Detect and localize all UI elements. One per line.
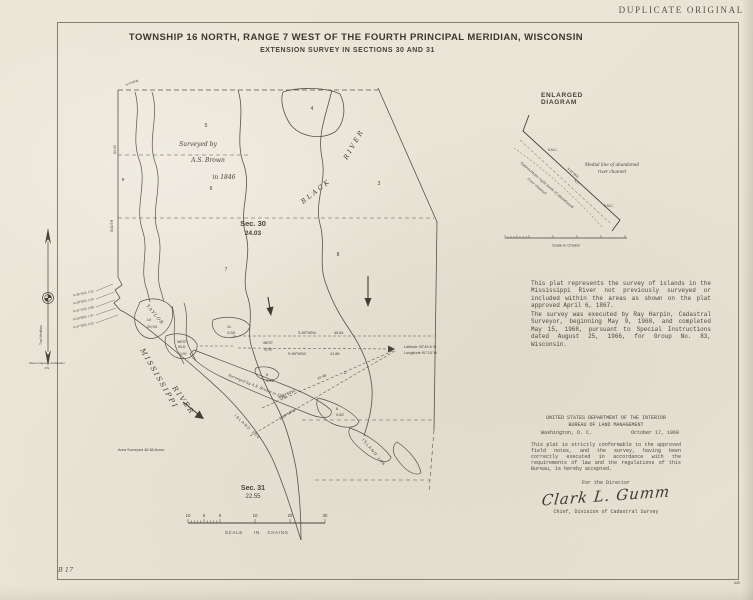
southeast-boundary-dashed — [429, 430, 434, 492]
long-center-island-outline — [190, 350, 331, 417]
taylor-island-name: TAYLOR — [144, 303, 165, 326]
meander-leader-3 — [96, 300, 115, 307]
island-5-area: 0.48 — [266, 378, 275, 383]
lot-number-9: 9 — [122, 177, 125, 182]
west-boundary-distance: 64.43 — [113, 145, 117, 154]
west-tie-distance: 26.60 — [264, 348, 273, 352]
tie-distance-3: 47.46 — [317, 373, 327, 381]
right-bank-dashed-2 — [514, 148, 602, 227]
section-30-area: 24.03 — [245, 230, 262, 237]
diagram-distance: 4.27 — [573, 179, 580, 186]
island-8-lot: 8 — [336, 406, 339, 411]
lot-number-5: 5 — [205, 123, 208, 129]
compass-quarter-sw — [45, 298, 48, 301]
diagram-scale-label: Scale in Chains — [552, 243, 580, 248]
surveyed-by-line1: Surveyed by — [179, 141, 217, 148]
scale-bar-ticks — [188, 519, 325, 523]
lot-number-1: 1 — [344, 370, 347, 375]
west-boundary-south-label: SOUTH — [110, 219, 114, 232]
smc-label-lower: S.M.C. — [604, 204, 614, 208]
main-scale-bar: 10 5 0 10 20 30 SCALE IN CHAINS — [186, 513, 328, 535]
tie-bearing-2: S.89°56'W. — [288, 352, 307, 356]
tie-line-3 — [262, 350, 395, 408]
section-30-label: Sec. 30 — [240, 219, 266, 228]
surveyed-by-line3: in 1846 — [213, 174, 236, 181]
meander-leader-2 — [96, 292, 114, 299]
scale-word-scale: SCALE — [225, 530, 243, 535]
declination-label-line1: Mean magnetic declination — [29, 361, 65, 365]
west-island-name-line1: WEST — [177, 340, 188, 344]
flow-arrows — [183, 276, 372, 419]
tie-distance-1: 45.84 — [334, 331, 344, 335]
west-island-name-line2: ISLD. — [178, 345, 187, 349]
flow-arrow-channel-head — [267, 307, 274, 317]
taylor-island-area: 20.94 — [147, 324, 158, 329]
sheet-number-mark: 440 — [734, 581, 740, 585]
island-105-label: ISLAND 105 — [233, 413, 261, 440]
plat-linework — [114, 88, 437, 540]
tie-bearing-4: S.89°59'W. — [279, 408, 297, 421]
map-labels: Surveyed by A.S. Brown in 1846 Sec. 30 2… — [73, 78, 438, 500]
tie-bearing-1: S.89°58'W. — [298, 331, 317, 335]
scale-tick-label-30: 30 — [323, 513, 328, 518]
latitude-label: Latitude 43°49.6' N — [404, 345, 436, 349]
interior-slough-east-line — [152, 92, 164, 302]
section-31-label: Sec. 31 — [241, 485, 265, 492]
black-river-left-bank — [238, 90, 301, 540]
meander-leader-1 — [96, 284, 113, 291]
diagram-scale-ticks — [505, 235, 625, 238]
smc-label-upper: S.M.C. — [548, 148, 558, 152]
island-lot4-outline — [282, 88, 344, 136]
scale-word-chains: CHAINS — [267, 530, 288, 535]
west-meander-zigzag — [114, 277, 122, 310]
interior-slough-west-line — [135, 92, 150, 302]
black-river-label-word2: RIVER — [341, 127, 366, 162]
tie-line-fan — [200, 336, 434, 436]
north-arrow: True Meridian Mean magnetic declination … — [29, 228, 65, 370]
lot-number-8: 8 — [337, 252, 340, 258]
lot-number-7: 7 — [225, 267, 228, 273]
area-surveyed-note: Area Surveyed 46.58 Acres — [118, 448, 164, 452]
declination-label-line2: 4°E — [45, 366, 50, 370]
meander-bearing-5: N.47°30'E. 2.52 — [73, 321, 95, 329]
island-11-lot: 11 — [227, 324, 232, 329]
tie-line-2 — [238, 348, 395, 349]
meander-leader-4 — [96, 308, 116, 315]
meander-bearing-1: N.36°45'E. 2.31 — [73, 289, 95, 297]
west-island-area: 0.90 — [180, 352, 187, 356]
north-arrowhead-icon — [45, 228, 51, 244]
medial-line-label-1: Medial line of abandoned — [584, 162, 639, 167]
island-11-area: 3.58 — [227, 330, 236, 335]
black-river-label-word1: BLACK — [299, 177, 333, 206]
island-5-lot: 5 — [266, 372, 269, 377]
northwest-corner-bearing: N.0°03'W. — [125, 78, 140, 87]
island-106-label: ISLAND 106 — [361, 437, 387, 466]
flow-arrow-channel-shaft — [268, 297, 270, 309]
meander-leader-5 — [96, 315, 118, 323]
longitude-label: Longitude 91°15' W — [404, 351, 437, 355]
scale-word-in: IN — [254, 530, 260, 535]
flow-arrow-black-river-head — [365, 298, 372, 307]
right-bank-label-1: Approximate right bank of abandoned — [519, 160, 575, 210]
lot-number-4: 4 — [311, 106, 314, 112]
scale-tick-label-20: 20 — [288, 513, 293, 518]
scale-tick-label-10l: 10 — [186, 513, 191, 518]
taylor-island-lot: 10 — [147, 317, 152, 322]
scale-tick-label-5: 5 — [203, 513, 206, 518]
northeast-boundary-line — [378, 88, 437, 430]
enlarged-diagram: S.M.C. S.M.C. S.42°45'E. 4.27 Medial lin… — [505, 115, 639, 248]
scale-tick-label-10r: 10 — [253, 513, 258, 518]
lot-number-3: 3 — [378, 181, 381, 187]
mississippi-right-bank — [120, 310, 301, 540]
lot-number-6: 6 — [210, 186, 213, 192]
scale-tick-marks — [188, 519, 325, 523]
true-meridian-label: True Meridian — [39, 325, 43, 345]
tie-distance-2: 41.88 — [330, 352, 340, 356]
meander-bearing-4: N.33°00'E. 1.87 — [73, 313, 95, 321]
surveyed-by-line2: A.S. Brown — [190, 157, 225, 164]
section-31-area: 22.55 — [245, 494, 261, 500]
scale-tick-label-0: 0 — [219, 513, 222, 518]
compass-quarter-ne — [48, 295, 51, 298]
tie-bearing-3: S.89°58'W. — [278, 389, 297, 400]
survey-plat-map: True Meridian Mean magnetic declination … — [0, 0, 753, 600]
black-river-right-bank — [318, 90, 372, 436]
island-8-area: 0.82 — [336, 412, 345, 417]
medial-line-label-2: river channel — [598, 169, 627, 174]
meander-bearing-2: N.29°30'E. 1.64 — [73, 297, 95, 305]
taylor-island-outline — [135, 299, 173, 339]
southeast-island-2-outline — [393, 442, 421, 474]
meander-bearing-3: N.41°15'E. 2.08 — [73, 305, 95, 313]
west-tie-label: WEST — [263, 341, 274, 345]
